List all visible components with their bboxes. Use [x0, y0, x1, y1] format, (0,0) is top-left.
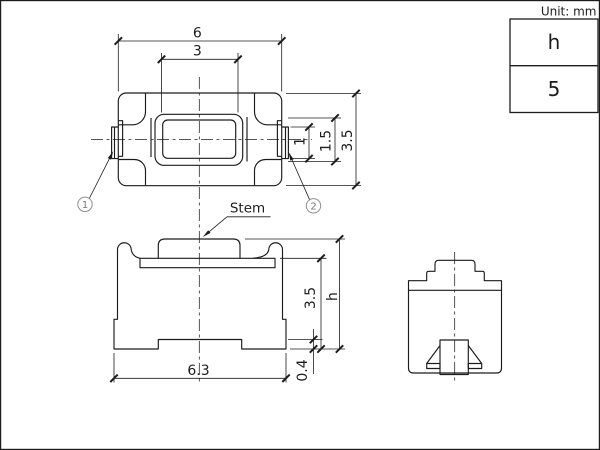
callout-1-leader: [89, 156, 111, 199]
callout-1-number: 1: [82, 200, 88, 211]
dim-overall-width: 6: [193, 25, 202, 41]
corner-relief-bottom-left: [119, 160, 146, 186]
front-cover-plate: [140, 258, 275, 267]
top-view: [91, 77, 312, 383]
dim-terminal-offset: 0.4: [295, 359, 311, 381]
side-lead-bend-left: [427, 346, 440, 364]
left-edge-notch: [119, 121, 123, 157]
callout-2-arrow-icon: [289, 152, 294, 161]
dim-overall-height: h: [325, 292, 341, 301]
front-view-dimensions: 3.5 h 0.4 6.3: [110, 235, 345, 382]
spec-table-value: 5: [548, 77, 561, 101]
technical-drawing: Unit: mm h 5: [0, 0, 600, 450]
corner-relief-bottom-right: [255, 160, 282, 186]
side-lead-bend-right: [468, 346, 481, 364]
stem-label: Stem: [230, 200, 265, 216]
drawing-sheet: Unit: mm h 5: [0, 0, 600, 450]
callout-2-number: 2: [310, 201, 316, 212]
side-pad-left: [427, 364, 440, 369]
callout-1: 1: [78, 151, 113, 211]
stem-outline-outer: [155, 114, 243, 165]
side-center-foot: [440, 340, 468, 375]
front-view: [114, 239, 286, 349]
side-view: [409, 252, 502, 382]
spec-table: h 5: [510, 19, 598, 113]
dim-stem-depth: 1.5: [319, 130, 335, 152]
corner-relief-top-right: [255, 93, 282, 124]
dim-terminal-height: 1: [293, 137, 309, 146]
dim-body-height: 3.5: [303, 287, 319, 309]
callout-2-leader: [291, 157, 310, 200]
corner-relief-top-left: [119, 93, 146, 124]
unit-label: Unit: mm: [541, 5, 597, 19]
dim-stem-width: 3: [193, 44, 202, 60]
stem-callout: Stem: [203, 200, 271, 237]
side-pad-right: [468, 364, 481, 369]
right-edge-notch: [277, 121, 281, 157]
dim-overall-depth: 3.5: [340, 129, 356, 151]
spec-table-parameter: h: [548, 30, 561, 54]
dim-bottom-width: 6.3: [187, 363, 209, 379]
